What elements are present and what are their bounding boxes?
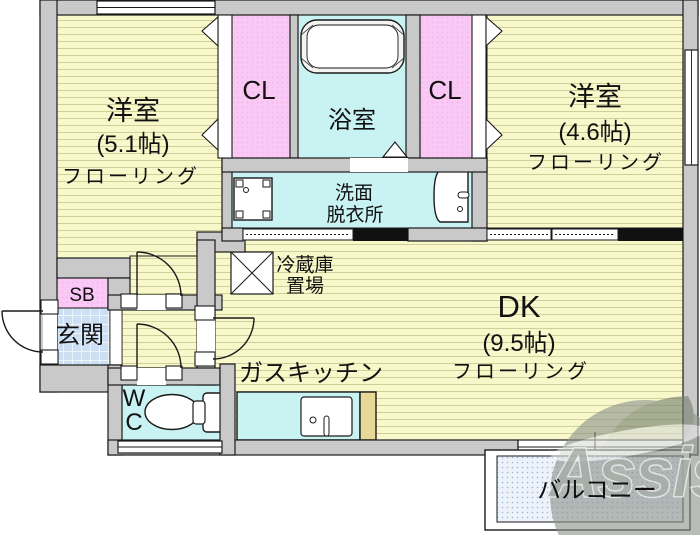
floor-plan-canvas: Assist 洋室 (5.1帖) フローリング CL 浴室 CL 洋室 (4.6… [0, 0, 700, 535]
kitchen-counter-icon [237, 392, 376, 440]
label-closet2: CL [428, 75, 461, 105]
jamb-dk-bottom [195, 352, 215, 366]
sliding-door-western2-b [552, 229, 618, 240]
jamb-dk-top [195, 306, 215, 320]
partition-black-western2 [618, 228, 683, 241]
wall-bath-right [406, 15, 420, 158]
vanity-sink-icon [434, 170, 469, 222]
label-western2-name: 洋室 [568, 82, 622, 112]
toilet-icon [145, 393, 225, 432]
floor-plan-svg: Assist 洋室 (5.1帖) フローリング CL 浴室 CL 洋室 (4.6… [0, 0, 700, 535]
bathtub-inner [307, 25, 398, 68]
label-dk-name: DK [497, 289, 540, 324]
jamb-western1-right [166, 294, 182, 308]
label-kitchen: ガスキッチン [239, 360, 383, 387]
label-western2-size: (4.6帖) [558, 119, 631, 146]
washer-knob [244, 188, 249, 193]
jamb-wc-left [121, 366, 137, 380]
opening-western1-door [137, 295, 166, 310]
washer-corner-bl [236, 211, 243, 218]
label-western1-size: (5.1帖) [96, 131, 169, 158]
label-wc-line1: W [123, 385, 146, 412]
opening-dk-door [197, 320, 215, 352]
entrance-step [110, 308, 122, 368]
label-bathroom: 浴室 [328, 107, 376, 134]
room-western-5-1-floor-extension [130, 256, 197, 297]
label-wc-line2: C [125, 409, 142, 436]
vanity-drain [458, 207, 463, 212]
washer-corner-br [263, 211, 270, 218]
wall-band-gray-b [408, 228, 487, 241]
toilet-seat-hinge [193, 401, 205, 424]
label-fridge-line1: 冷蔵庫 [276, 254, 333, 276]
jamb-entrance-bottom [41, 350, 58, 364]
label-washroom-line2: 脱衣所 [326, 204, 383, 226]
label-western1-name: 洋室 [106, 96, 160, 126]
jamb-western1-left [121, 294, 137, 308]
toilet-bowl [145, 395, 199, 430]
opening-entrance [43, 313, 57, 351]
label-entrance: 玄関 [56, 322, 104, 349]
label-fridge-line2: 置場 [286, 275, 324, 297]
label-dk-size: (9.5帖) [482, 330, 555, 357]
vanity-faucet [458, 192, 469, 198]
hallway-floor [122, 310, 197, 368]
wall-band-gray-a [222, 228, 243, 241]
sliding-door-western2-a [487, 229, 551, 240]
jamb-entrance-top [41, 300, 58, 314]
refrigerator-space-icon [231, 252, 273, 294]
window-top [97, 1, 215, 14]
wall-bath-left [290, 15, 298, 158]
closet-1-door-track [218, 15, 232, 158]
kitchen-sink-drain [310, 417, 316, 423]
washer-corner-tr [263, 180, 270, 187]
wall-above-shoebox [57, 258, 130, 278]
opening-bathroom-door [350, 158, 408, 172]
label-western2-floor: フローリング [527, 151, 665, 174]
label-balcony: バルコニー [537, 477, 657, 504]
label-washroom-line1: 洗面 [335, 182, 373, 204]
label-closet1: CL [242, 75, 275, 105]
label-western1-floor: フローリング [62, 165, 200, 188]
jamb-wc-right [166, 366, 182, 380]
kitchen-counter-end [360, 392, 376, 440]
window-wc [118, 441, 222, 453]
partition-black-washroom [353, 228, 408, 241]
bathtub-icon [301, 20, 404, 73]
washing-machine-icon [234, 178, 272, 220]
washer-corner-tl [236, 180, 243, 187]
label-dk-floor: フローリング [452, 360, 590, 383]
kitchen-faucet [324, 416, 329, 436]
opening-wc-door [137, 368, 166, 385]
label-shoebox: SB [69, 285, 94, 306]
sliding-door-washroom [243, 229, 353, 240]
closet-2-door-track [472, 15, 486, 158]
window-right [685, 50, 698, 165]
